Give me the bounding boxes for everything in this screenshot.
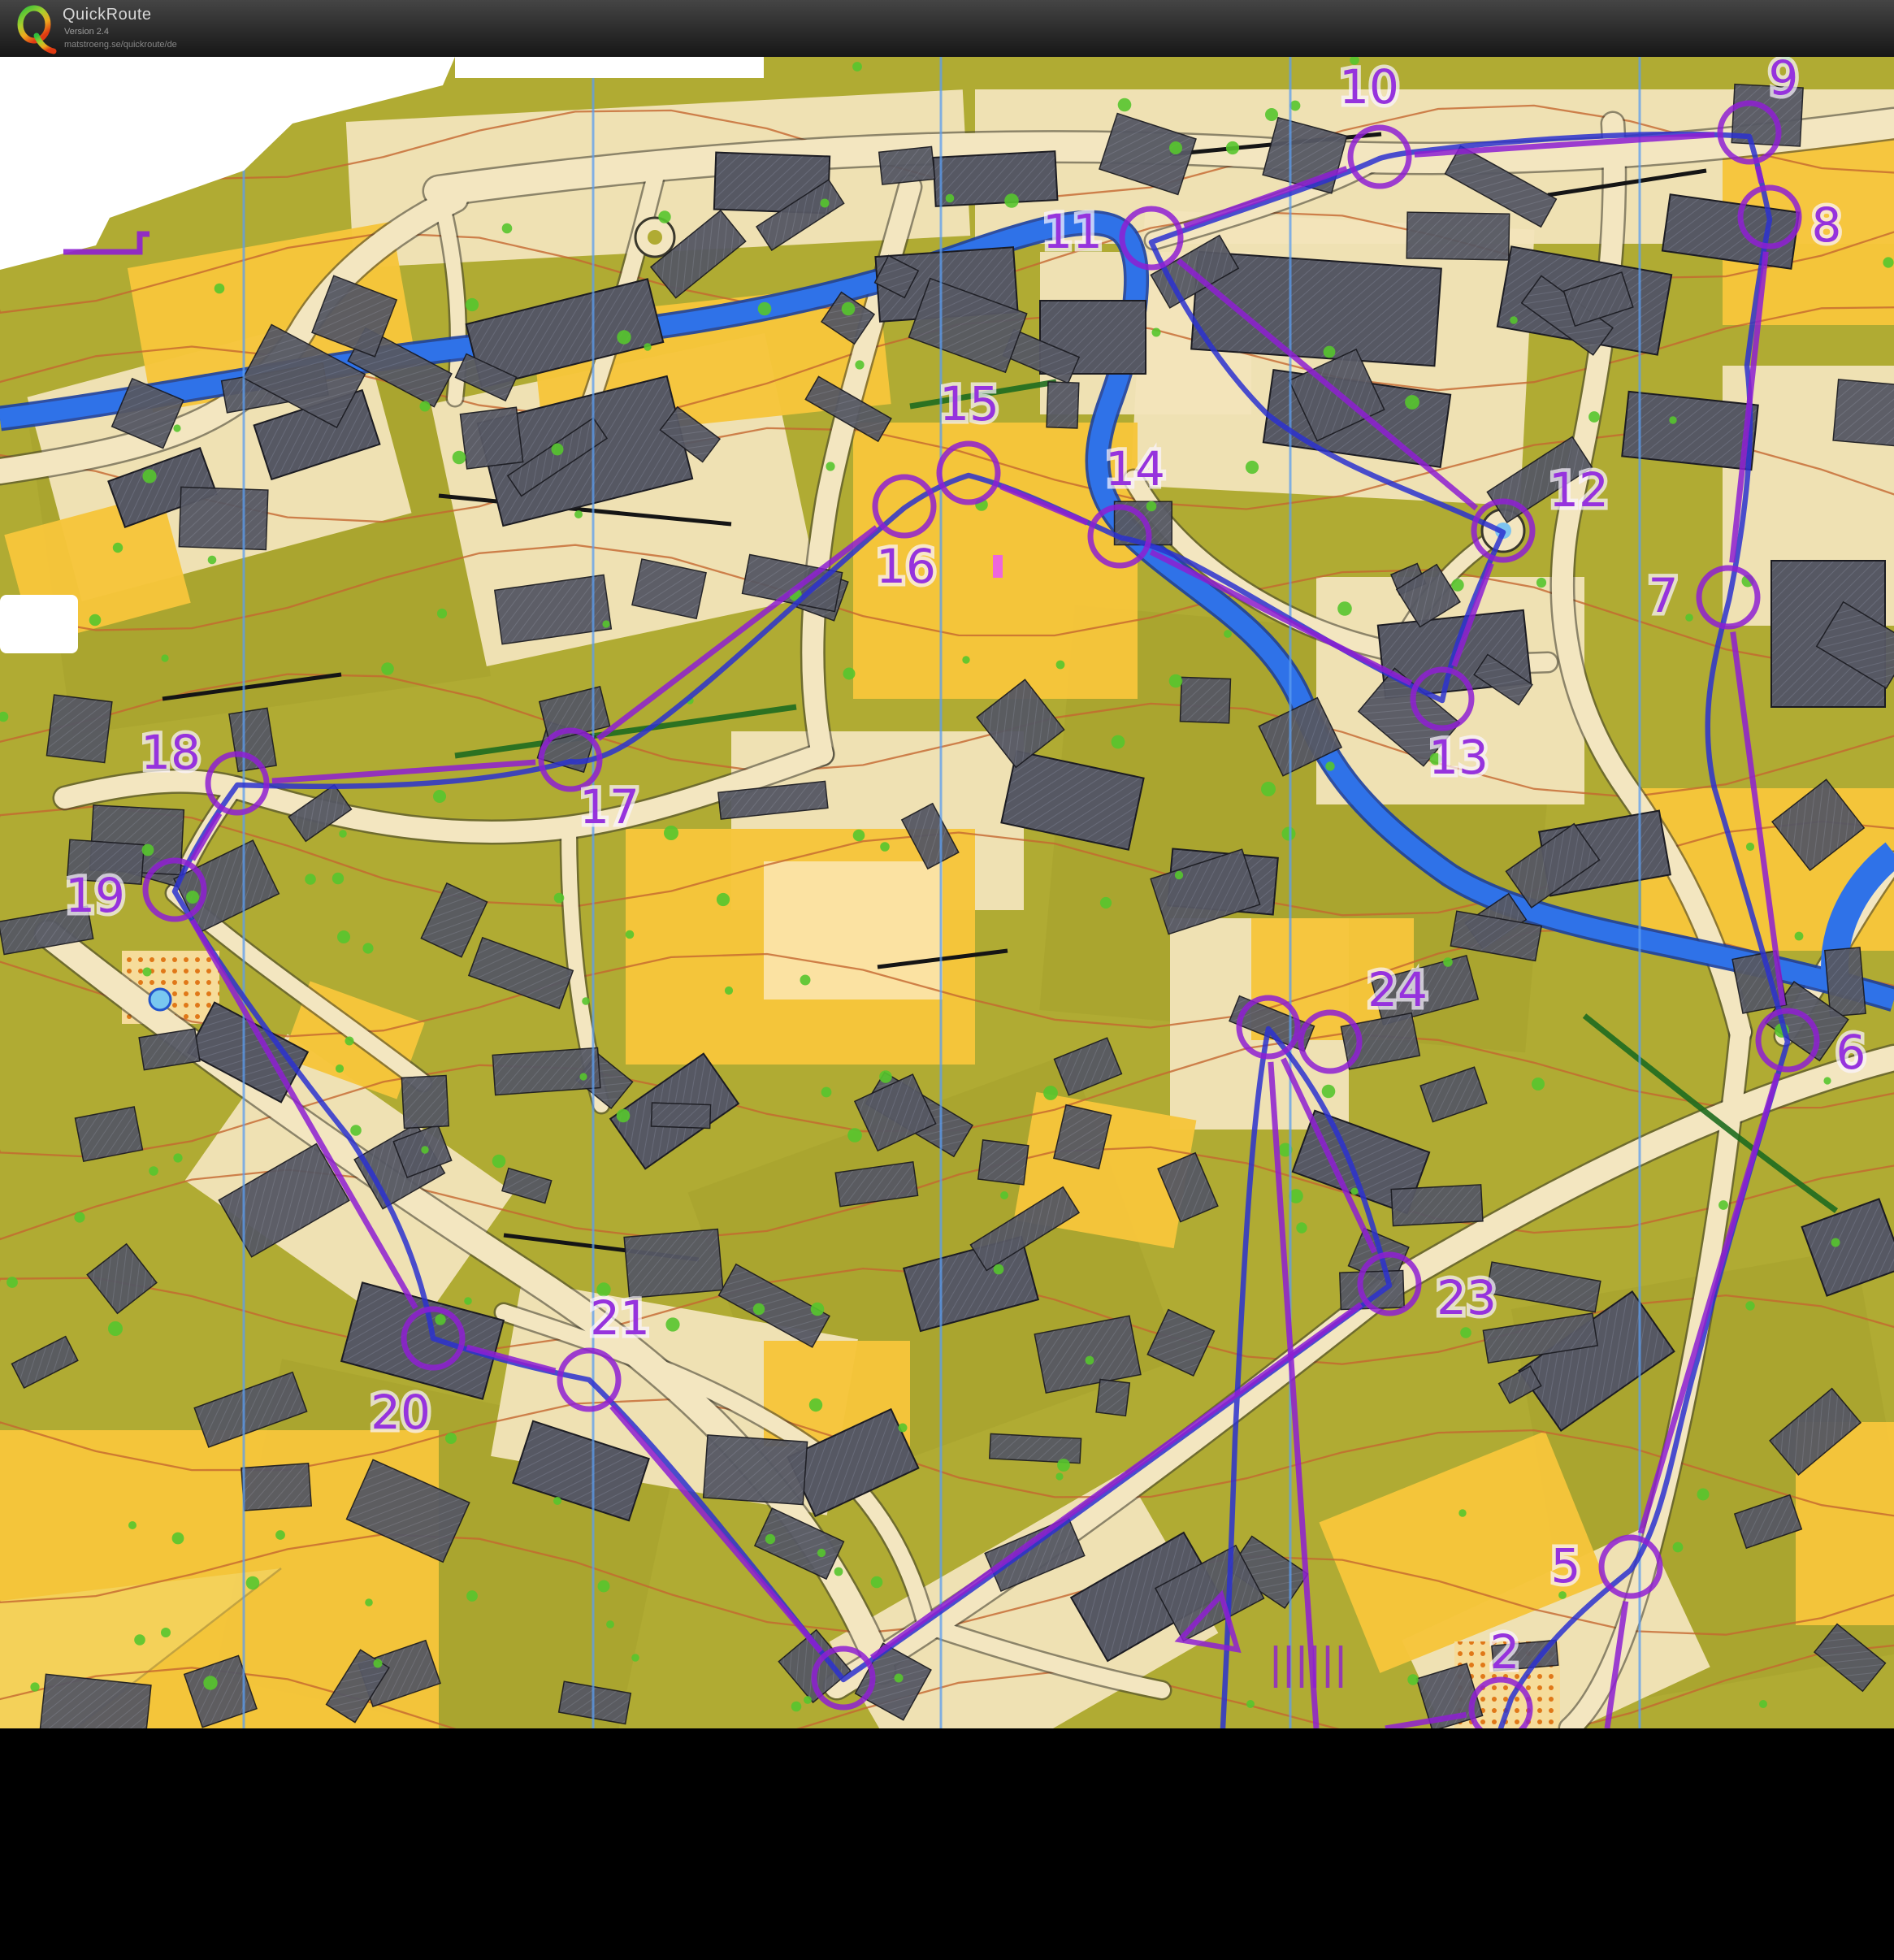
control-number-18: 18: [141, 725, 201, 780]
control-number-10: 10: [1339, 59, 1399, 115]
map-viewport[interactable]: 2567891011121314151617181920212324: [0, 57, 1894, 1728]
control-number-5: 5: [1551, 1538, 1581, 1594]
control-number-11: 11: [1042, 204, 1103, 259]
app-title: QuickRoute: [63, 6, 152, 24]
control-number-7: 7: [1649, 568, 1679, 623]
control-number-6: 6: [1836, 1025, 1866, 1080]
control-number-8: 8: [1812, 197, 1842, 253]
control-number-2: 2: [1490, 1624, 1520, 1680]
control-number-23: 23: [1437, 1270, 1497, 1325]
control-number-12: 12: [1549, 462, 1609, 518]
bottom-panel: [0, 1728, 1894, 1960]
control-number-20: 20: [371, 1385, 431, 1440]
control-number-24: 24: [1367, 962, 1428, 1017]
control-number-16: 16: [876, 539, 936, 594]
control-number-17: 17: [579, 779, 639, 835]
course-leg: [1757, 167, 1762, 183]
control-number-13: 13: [1428, 730, 1489, 785]
app-version: Version 2.4: [64, 27, 109, 37]
orienteering-map: 2567891011121314151617181920212324: [0, 57, 1894, 1728]
control-number-21: 21: [590, 1290, 650, 1346]
app-website: matstroeng.se/quickroute/de: [64, 40, 177, 50]
control-number-15: 15: [939, 376, 999, 431]
control-number-19: 19: [65, 868, 125, 923]
quickroute-logo: [13, 3, 59, 55]
control-number-14: 14: [1105, 441, 1165, 497]
control-number-9: 9: [1769, 57, 1799, 106]
titlebar: QuickRoute Version 2.4 matstroeng.se/qui…: [0, 0, 1894, 57]
